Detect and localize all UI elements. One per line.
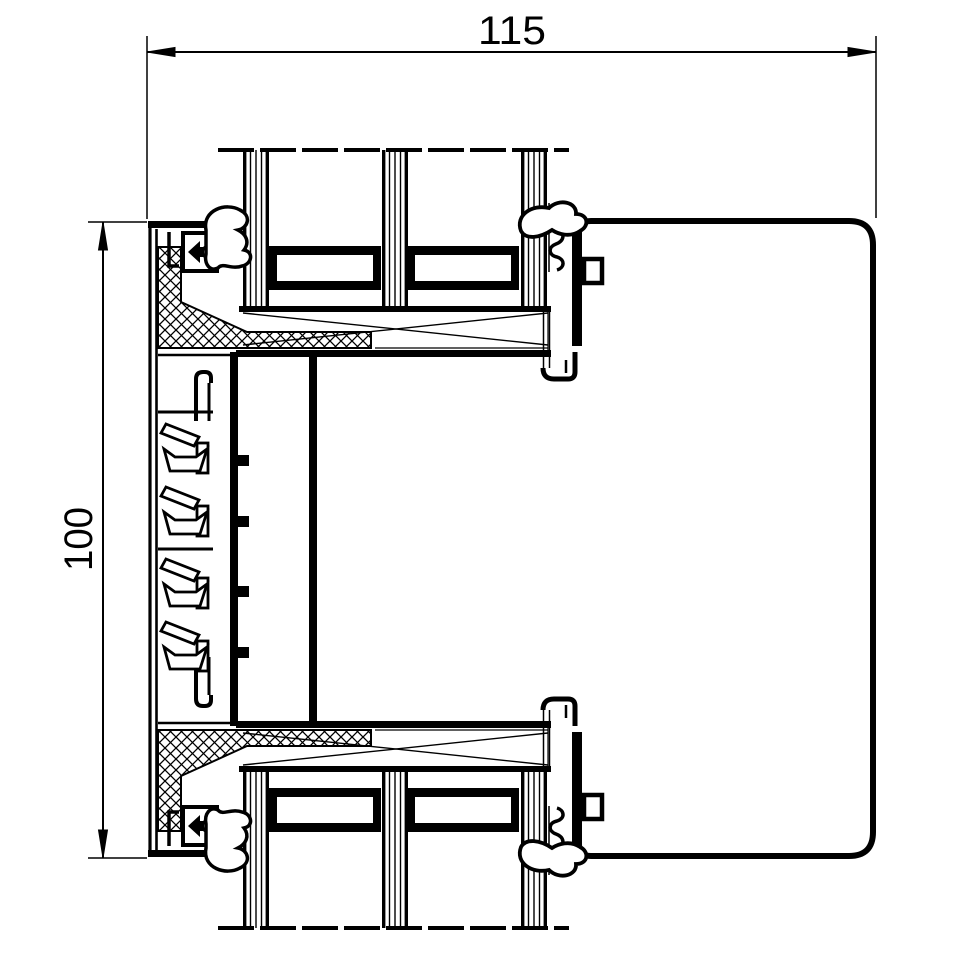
spacer-bar xyxy=(407,788,519,832)
frame-inner-wall xyxy=(230,352,238,726)
glazing-top-edge xyxy=(239,766,551,772)
arrowhead-down-icon xyxy=(99,830,108,858)
arrowhead-right-icon xyxy=(848,48,876,57)
arrowhead-left-icon xyxy=(147,48,175,57)
glazing-bead-bottom xyxy=(572,732,582,850)
dimension-value-100: 100 xyxy=(57,507,101,571)
bead-clip-tab-bottom xyxy=(584,795,602,819)
mullion-web xyxy=(309,357,317,721)
insulation-hatch xyxy=(158,247,371,831)
glass-pane xyxy=(245,150,268,309)
mullion-top-flange xyxy=(236,350,551,357)
glass-pane xyxy=(245,769,268,928)
gasket-module xyxy=(161,487,208,536)
spacer-bar xyxy=(269,788,381,832)
frame-gasket-top xyxy=(206,207,251,269)
profile-cross-section-drawing: 115 100 xyxy=(0,0,960,960)
bottom-glazing-unit xyxy=(239,728,551,928)
spacer-bar xyxy=(407,246,519,290)
gasket-module xyxy=(161,424,208,473)
spacer-bar xyxy=(269,246,381,290)
mullion-bottom-flange xyxy=(236,721,551,728)
dimension-vertical: 100 xyxy=(57,222,147,858)
drawing-canvas: 115 100 xyxy=(0,0,960,960)
dimension-value-115: 115 xyxy=(478,9,546,53)
gasket-nose-bottom xyxy=(520,841,587,876)
frame-gasket-bottom xyxy=(206,809,251,871)
top-glazing-unit xyxy=(239,150,551,350)
glass-pane xyxy=(384,150,407,309)
arrowhead-up-icon xyxy=(99,222,108,250)
glazing-bottom-edge xyxy=(239,306,551,312)
sash-panel xyxy=(520,202,873,875)
glass-pane xyxy=(384,769,407,928)
mullion xyxy=(236,311,575,767)
sash-outline xyxy=(579,221,873,856)
glazing-bead-top xyxy=(572,228,582,346)
bead-clip-tab-top xyxy=(584,259,602,283)
gasket-module xyxy=(161,559,208,608)
gasket-nose-top xyxy=(520,202,587,237)
gasket-module xyxy=(161,622,208,671)
